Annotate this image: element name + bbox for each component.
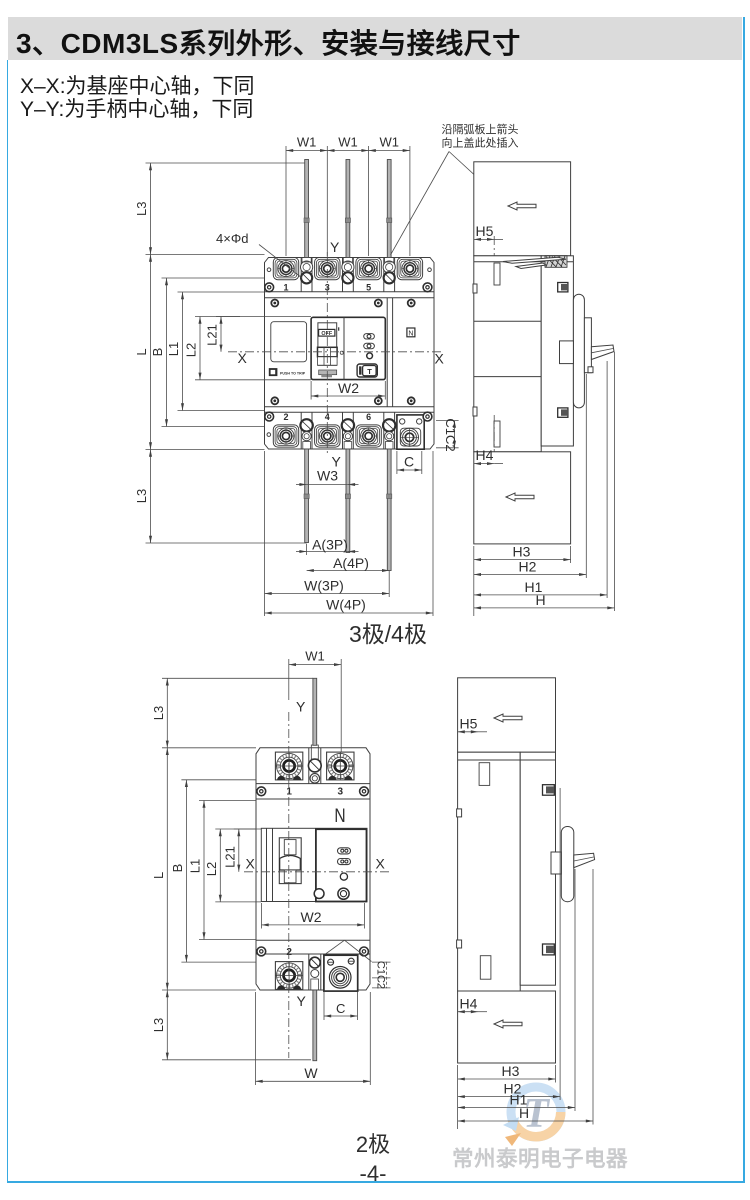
svg-text:L: L <box>134 348 149 355</box>
svg-text:W(4P): W(4P) <box>326 597 366 613</box>
svg-text:L3: L3 <box>134 489 149 503</box>
svg-text:W3: W3 <box>317 468 338 484</box>
svg-text:向上盖此处插入: 向上盖此处插入 <box>442 136 519 150</box>
svg-text:Y: Y <box>296 699 306 715</box>
svg-text:W2: W2 <box>301 909 322 925</box>
svg-text:H: H <box>519 1105 529 1121</box>
svg-text:H5: H5 <box>460 715 478 731</box>
svg-text:3极/4极: 3极/4极 <box>349 621 427 647</box>
svg-text:W1: W1 <box>380 135 400 150</box>
svg-text:X: X <box>435 351 445 367</box>
svg-text:5: 5 <box>366 283 371 293</box>
svg-text:Y: Y <box>330 239 340 255</box>
svg-text:4×Φd: 4×Φd <box>216 231 248 246</box>
svg-text:H3: H3 <box>513 544 531 560</box>
svg-text:L2: L2 <box>204 862 219 876</box>
svg-text:W2: W2 <box>338 380 359 396</box>
svg-text:H5: H5 <box>476 223 494 239</box>
svg-text:PUSH TO TRIP: PUSH TO TRIP <box>280 371 306 375</box>
svg-text:常州泰明电子电器: 常州泰明电子电器 <box>452 1146 628 1171</box>
svg-text:A(3P): A(3P) <box>312 537 348 553</box>
svg-text:L3: L3 <box>151 706 166 720</box>
svg-text:3: 3 <box>338 787 344 798</box>
svg-text:Y: Y <box>297 993 307 1009</box>
svg-text:B: B <box>170 864 185 873</box>
svg-text:W1: W1 <box>297 135 317 150</box>
svg-text:L2: L2 <box>184 343 199 357</box>
svg-text:C1C2: C1C2 <box>375 961 387 989</box>
svg-text:L3: L3 <box>151 1018 166 1032</box>
svg-text:H2: H2 <box>519 559 537 575</box>
svg-text:H4: H4 <box>476 447 494 463</box>
svg-text:沿隔弧板上箭头: 沿隔弧板上箭头 <box>442 122 519 136</box>
svg-text:X: X <box>376 856 386 872</box>
svg-text:N: N <box>334 805 345 827</box>
svg-text:L21: L21 <box>222 846 237 868</box>
svg-text:N: N <box>408 330 413 337</box>
svg-text:A(4P): A(4P) <box>333 555 369 571</box>
svg-text:W1: W1 <box>305 649 325 664</box>
svg-text:C: C <box>336 1001 345 1016</box>
svg-text:C: C <box>404 454 414 470</box>
svg-text:X: X <box>238 350 248 366</box>
svg-text:-4-: -4- <box>360 1161 387 1186</box>
svg-text:H3: H3 <box>502 1063 520 1079</box>
svg-text:H: H <box>535 592 545 608</box>
svg-text:W(3P): W(3P) <box>304 578 344 594</box>
svg-text:C1C2: C1C2 <box>443 418 458 451</box>
svg-text:B: B <box>150 348 165 357</box>
svg-text:L: L <box>151 872 166 879</box>
svg-text:T: T <box>367 367 372 376</box>
svg-text:6: 6 <box>366 412 371 422</box>
svg-text:L3: L3 <box>134 202 149 216</box>
svg-text:H4: H4 <box>460 995 478 1011</box>
svg-text:2极: 2极 <box>356 1132 390 1157</box>
svg-text:W1: W1 <box>338 135 358 150</box>
svg-text:X: X <box>246 856 256 872</box>
svg-text:L1: L1 <box>166 342 181 356</box>
svg-text:1: 1 <box>286 787 292 798</box>
svg-text:L1: L1 <box>188 859 203 873</box>
svg-text:L21: L21 <box>205 324 220 346</box>
svg-text:2: 2 <box>286 947 292 958</box>
svg-text:2: 2 <box>283 412 288 422</box>
svg-text:1: 1 <box>283 283 288 293</box>
svg-text:W: W <box>304 1065 318 1081</box>
